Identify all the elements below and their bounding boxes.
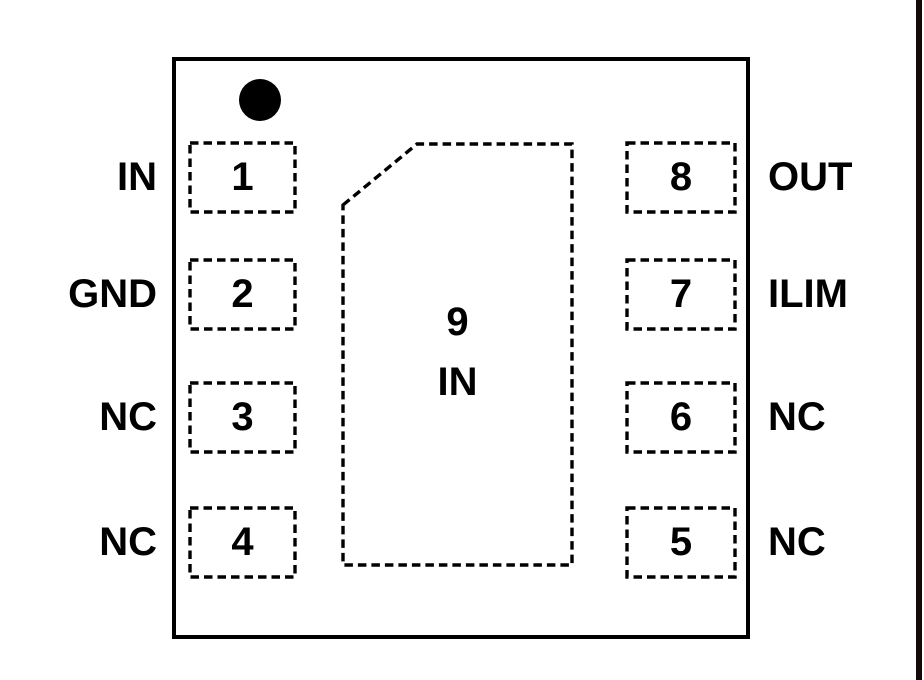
pin-number-3: 3 (190, 383, 295, 452)
pin-name-nc-3: NC (99, 383, 157, 452)
pin-name-nc-6: NC (768, 383, 826, 452)
pin-name-in: IN (117, 143, 157, 212)
pin-name-nc-5: NC (768, 508, 826, 577)
pin-number-8: 8 (627, 143, 735, 212)
pin-number-5: 5 (627, 508, 735, 577)
thermal-pad-outline (343, 144, 572, 565)
pin-name-gnd: GND (68, 260, 157, 329)
pin-name-out: OUT (768, 143, 852, 212)
thermal-pad-name: IN (343, 360, 572, 404)
pin-number-1: 1 (190, 143, 295, 212)
pin-name-ilim: ILIM (768, 260, 848, 329)
pinout-diagram: 1 2 3 4 8 7 6 5 IN GND NC NC OUT ILIM NC… (0, 0, 924, 680)
pin-number-6: 6 (627, 383, 735, 452)
page-edge-bar (916, 0, 922, 680)
thermal-pad-number: 9 (343, 300, 572, 344)
pin-number-2: 2 (190, 260, 295, 329)
pin-number-4: 4 (190, 508, 295, 577)
pin-number-7: 7 (627, 260, 735, 329)
pin-name-nc-4: NC (99, 508, 157, 577)
